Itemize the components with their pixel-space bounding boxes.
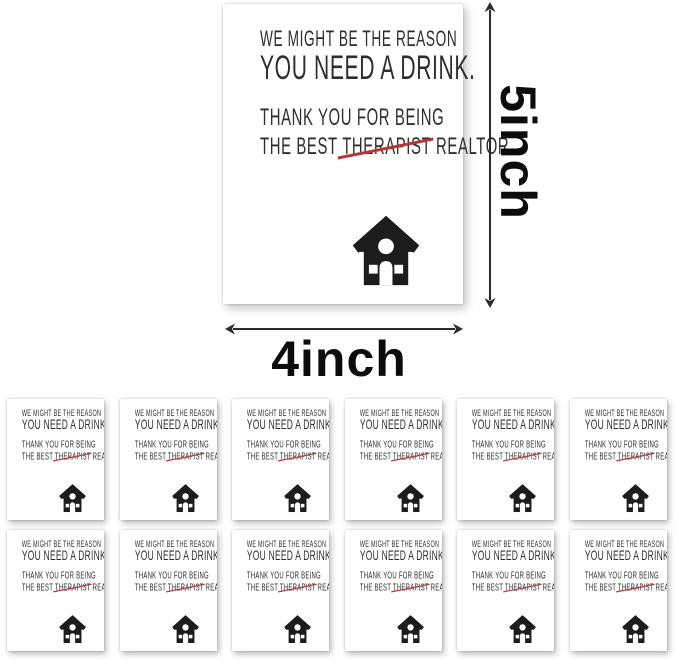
card-line-4: THE BEST THERAPIST REALTOR.	[585, 450, 667, 462]
card-line-2: YOU NEED A DRINK.	[134, 418, 216, 432]
card-line-2: YOU NEED A DRINK.	[22, 549, 104, 563]
card-line-4: THE BEST THERAPIST REALTOR.	[247, 581, 329, 593]
card-line-4-prefix: THE BEST	[585, 582, 618, 593]
card-artwork: WE MIGHT BE THE REASON YOU NEED A DRINK.…	[7, 530, 103, 651]
card-artwork: WE MIGHT BE THE REASON YOU NEED A DRINK.…	[345, 399, 441, 520]
card-line-3: THANK YOU FOR BEING	[585, 439, 667, 451]
strikethrough-word: THERAPIST	[342, 132, 431, 161]
house-icon	[283, 483, 313, 513]
card-line-4: THE BEST THERAPIST REALTOR.	[260, 132, 465, 161]
card-line-3: THANK YOU FOR BEING	[22, 570, 104, 582]
mini-card: WE MIGHT BE THE REASON YOU NEED A DRINK.…	[570, 399, 667, 520]
house-icon	[58, 614, 88, 644]
card-artwork: WE MIGHT BE THE REASON YOU NEED A DRINK.…	[120, 399, 216, 520]
card-line-4-suffix: REALTOR.	[429, 582, 442, 593]
card-text-block: WE MIGHT BE THE REASON YOU NEED A DRINK.…	[22, 408, 104, 462]
house-icon	[508, 614, 538, 644]
card-text-block: WE MIGHT BE THE REASON YOU NEED A DRINK.…	[585, 408, 667, 462]
product-image: WE MIGHT BE THE REASON YOU NEED A DRINK.…	[0, 0, 679, 663]
card-line-4-suffix: REALTOR.	[91, 582, 104, 593]
strikethrough-word: THERAPIST	[393, 450, 429, 462]
card-line-2: YOU NEED A DRINK.	[472, 418, 554, 432]
card-text-block: WE MIGHT BE THE REASON YOU NEED A DRINK.…	[134, 408, 216, 462]
card-text-block: WE MIGHT BE THE REASON YOU NEED A DRINK.…	[472, 408, 554, 462]
card-line-4: THE BEST THERAPIST REALTOR.	[22, 581, 104, 593]
card-line-3: THANK YOU FOR BEING	[247, 570, 329, 582]
card-artwork: WE MIGHT BE THE REASON YOU NEED A DRINK.…	[120, 530, 216, 651]
card-artwork: WE MIGHT BE THE REASON YOU NEED A DRINK.…	[232, 399, 328, 520]
card-line-3: THANK YOU FOR BEING	[472, 570, 554, 582]
strikethrough-word: THERAPIST	[505, 450, 541, 462]
card-line-4-prefix: THE BEST	[360, 582, 393, 593]
card-line-4: THE BEST THERAPIST REALTOR.	[134, 450, 216, 462]
height-dimension-label: 5inch	[488, 52, 548, 252]
mini-card: WE MIGHT BE THE REASON YOU NEED A DRINK.…	[232, 399, 329, 520]
card-line-2: YOU NEED A DRINK.	[360, 549, 442, 563]
house-icon	[283, 614, 313, 644]
card-line-4-prefix: THE BEST	[247, 451, 280, 462]
card-line-2: YOU NEED A DRINK.	[585, 549, 667, 563]
card-line-3: THANK YOU FOR BEING	[360, 570, 442, 582]
card-text-block: WE MIGHT BE THE REASON YOU NEED A DRINK.…	[360, 539, 442, 593]
card-line-4-suffix: REALTOR.	[203, 451, 216, 462]
strikethrough-word: THERAPIST	[393, 581, 429, 593]
card-artwork: WE MIGHT BE THE REASON YOU NEED A DRINK.…	[345, 530, 441, 651]
card-line-2: YOU NEED A DRINK.	[360, 418, 442, 432]
card-line-4-prefix: THE BEST	[134, 451, 167, 462]
card-artwork: WE MIGHT BE THE REASON YOU NEED A DRINK.…	[232, 530, 328, 651]
strikethrough-word: THERAPIST	[55, 450, 91, 462]
card-line-4: THE BEST THERAPIST REALTOR.	[22, 450, 104, 462]
width-dimension-label: 4inch	[239, 334, 439, 384]
card-line-4: THE BEST THERAPIST REALTOR.	[472, 581, 554, 593]
card-text-block: WE MIGHT BE THE REASON YOU NEED A DRINK.…	[360, 408, 442, 462]
card-line-4-suffix: REALTOR.	[203, 582, 216, 593]
card-line-4-prefix: THE BEST	[585, 451, 618, 462]
house-icon	[395, 614, 425, 644]
mini-card: WE MIGHT BE THE REASON YOU NEED A DRINK.…	[7, 399, 104, 520]
card-line-3: THANK YOU FOR BEING	[260, 103, 465, 132]
card-text-block: WE MIGHT BE THE REASON YOU NEED A DRINK.…	[247, 539, 329, 593]
card-line-3: THANK YOU FOR BEING	[472, 439, 554, 451]
card-line-3: THANK YOU FOR BEING	[360, 439, 442, 451]
house-icon	[170, 483, 200, 513]
card-line-4-suffix: REALTOR.	[316, 582, 329, 593]
strikethrough-word: THERAPIST	[280, 450, 316, 462]
mini-card: WE MIGHT BE THE REASON YOU NEED A DRINK.…	[345, 530, 442, 651]
strikethrough-word: THERAPIST	[505, 581, 541, 593]
card-line-4-prefix: THE BEST	[22, 451, 55, 462]
hero-card: WE MIGHT BE THE REASON YOU NEED A DRINK.…	[223, 4, 463, 304]
card-artwork: WE MIGHT BE THE REASON YOU NEED A DRINK.…	[570, 399, 666, 520]
house-icon	[621, 614, 651, 644]
card-artwork: WE MIGHT BE THE REASON YOU NEED A DRINK.…	[223, 4, 463, 304]
card-text-block: WE MIGHT BE THE REASON YOU NEED A DRINK.…	[472, 539, 554, 593]
card-line-4-prefix: THE BEST	[360, 451, 393, 462]
card-line-3: THANK YOU FOR BEING	[22, 439, 104, 451]
card-artwork: WE MIGHT BE THE REASON YOU NEED A DRINK.…	[570, 530, 666, 651]
card-line-2: YOU NEED A DRINK.	[247, 418, 329, 432]
house-icon	[395, 483, 425, 513]
cards-grid-row-1: WE MIGHT BE THE REASON YOU NEED A DRINK.…	[7, 399, 667, 520]
card-line-4-prefix: THE BEST	[472, 582, 505, 593]
card-line-4: THE BEST THERAPIST REALTOR.	[360, 450, 442, 462]
card-line-4-suffix: REALTOR.	[91, 451, 104, 462]
strikethrough-word: THERAPIST	[168, 581, 204, 593]
card-line-4-suffix: REALTOR.	[541, 582, 554, 593]
house-icon	[508, 483, 538, 513]
card-line-4: THE BEST THERAPIST REALTOR.	[472, 450, 554, 462]
card-artwork: WE MIGHT BE THE REASON YOU NEED A DRINK.…	[457, 530, 553, 651]
mini-card: WE MIGHT BE THE REASON YOU NEED A DRINK.…	[7, 530, 104, 651]
card-line-2: YOU NEED A DRINK.	[247, 549, 329, 563]
card-line-2: YOU NEED A DRINK.	[22, 418, 104, 432]
card-line-4: THE BEST THERAPIST REALTOR.	[360, 581, 442, 593]
card-line-3: THANK YOU FOR BEING	[247, 439, 329, 451]
card-line-1: WE MIGHT BE THE REASON	[260, 26, 465, 51]
card-artwork: WE MIGHT BE THE REASON YOU NEED A DRINK.…	[457, 399, 553, 520]
mini-card: WE MIGHT BE THE REASON YOU NEED A DRINK.…	[457, 399, 554, 520]
card-line-2: YOU NEED A DRINK.	[585, 418, 667, 432]
strikethrough-word: THERAPIST	[168, 450, 204, 462]
house-icon	[170, 614, 200, 644]
mini-card: WE MIGHT BE THE REASON YOU NEED A DRINK.…	[457, 530, 554, 651]
mini-card: WE MIGHT BE THE REASON YOU NEED A DRINK.…	[232, 530, 329, 651]
mini-card: WE MIGHT BE THE REASON YOU NEED A DRINK.…	[570, 530, 667, 651]
card-text-block: WE MIGHT BE THE REASON YOU NEED A DRINK.…	[22, 539, 104, 593]
card-text-block: WE MIGHT BE THE REASON YOU NEED A DRINK.…	[260, 26, 465, 161]
card-line-3: THANK YOU FOR BEING	[585, 570, 667, 582]
strikethrough-word: THERAPIST	[55, 581, 91, 593]
card-line-4: THE BEST THERAPIST REALTOR.	[585, 581, 667, 593]
card-line-4-suffix: REALTOR.	[429, 451, 442, 462]
card-text-block: WE MIGHT BE THE REASON YOU NEED A DRINK.…	[247, 408, 329, 462]
house-icon	[349, 213, 423, 287]
cards-grid-row-2: WE MIGHT BE THE REASON YOU NEED A DRINK.…	[7, 530, 667, 651]
mini-card: WE MIGHT BE THE REASON YOU NEED A DRINK.…	[345, 399, 442, 520]
card-line-3: THANK YOU FOR BEING	[134, 570, 216, 582]
card-artwork: WE MIGHT BE THE REASON YOU NEED A DRINK.…	[7, 399, 103, 520]
card-text-block: WE MIGHT BE THE REASON YOU NEED A DRINK.…	[585, 539, 667, 593]
card-line-4: THE BEST THERAPIST REALTOR.	[134, 581, 216, 593]
card-line-4-suffix: REALTOR.	[541, 451, 554, 462]
strikethrough-word: THERAPIST	[280, 581, 316, 593]
card-line-4-prefix: THE BEST	[472, 451, 505, 462]
card-line-4-suffix: REALTOR.	[316, 451, 329, 462]
strikethrough-word: THERAPIST	[618, 450, 654, 462]
card-line-2: YOU NEED A DRINK.	[134, 549, 216, 563]
card-line-4-prefix: THE BEST	[134, 582, 167, 593]
house-icon	[58, 483, 88, 513]
card-line-4-prefix: THE BEST	[260, 133, 342, 160]
card-text-block: WE MIGHT BE THE REASON YOU NEED A DRINK.…	[134, 539, 216, 593]
house-icon	[621, 483, 651, 513]
card-line-4: THE BEST THERAPIST REALTOR.	[247, 450, 329, 462]
card-line-2: YOU NEED A DRINK.	[260, 51, 465, 85]
mini-card: WE MIGHT BE THE REASON YOU NEED A DRINK.…	[120, 530, 217, 651]
card-line-4-prefix: THE BEST	[22, 582, 55, 593]
card-line-2: YOU NEED A DRINK.	[472, 549, 554, 563]
card-line-4-suffix: REALTOR.	[654, 451, 667, 462]
mini-card: WE MIGHT BE THE REASON YOU NEED A DRINK.…	[120, 399, 217, 520]
card-line-3: THANK YOU FOR BEING	[134, 439, 216, 451]
card-line-4-suffix: REALTOR.	[654, 582, 667, 593]
strikethrough-word: THERAPIST	[618, 581, 654, 593]
card-line-4-prefix: THE BEST	[247, 582, 280, 593]
